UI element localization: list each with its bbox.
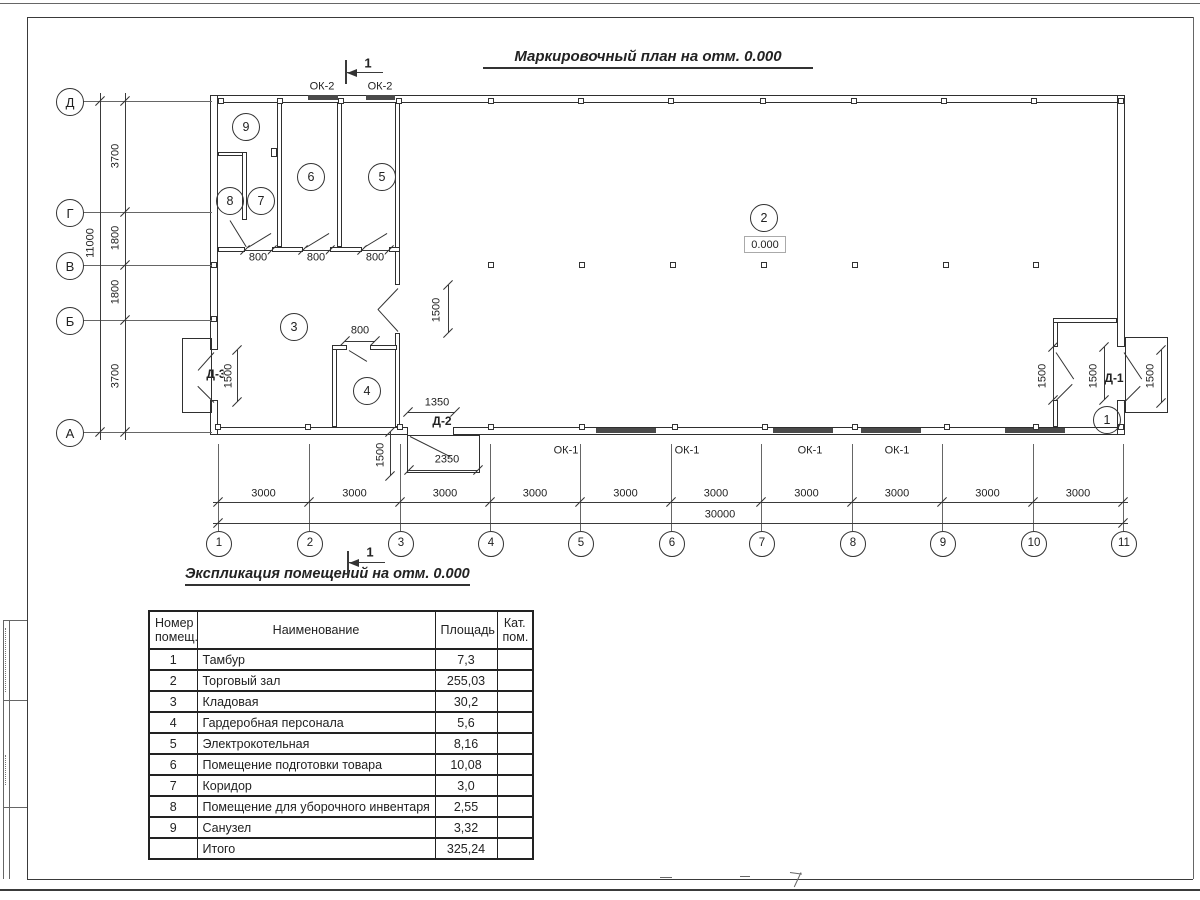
section-arrow-icon <box>349 559 359 567</box>
axis-circle-v: Д <box>56 88 84 116</box>
room-number-circle: 7 <box>247 187 275 215</box>
axis-circle-h: 6 <box>659 531 685 557</box>
axis-line <box>82 265 212 266</box>
table-row: 8Помещение для уборочного инвентаря2,55 <box>149 796 533 817</box>
dim-label: 1500 <box>1038 363 1049 389</box>
dim-label: 3000 <box>522 489 548 500</box>
interior-wall <box>1053 400 1058 427</box>
col-header-category: Кат. пом. <box>497 611 533 649</box>
axis-circle-h: 7 <box>749 531 775 557</box>
frame-edge-bottom <box>0 889 1200 891</box>
col-header-area: Площадь <box>435 611 497 649</box>
table-row: Итого325,24 <box>149 838 533 859</box>
column-marker <box>218 98 224 104</box>
dim-line <box>408 412 455 413</box>
table-row: 1Тамбур7,3 <box>149 649 533 670</box>
room-number-circle: 6 <box>297 163 325 191</box>
interior-wall <box>272 247 303 252</box>
dim-label: 3700 <box>111 143 122 169</box>
table-cell-name: Помещение для уборочного инвентаря <box>197 796 435 817</box>
axis-circle-h: 4 <box>478 531 504 557</box>
frame-margin-line-1 <box>3 620 4 879</box>
axis-line <box>671 444 672 531</box>
axis-line <box>852 444 853 531</box>
table-cell-category <box>497 754 533 775</box>
axis-line <box>309 444 310 531</box>
table-cell-category <box>497 733 533 754</box>
explication-title: Экспликация помещений на отм. 0.000 <box>185 566 470 586</box>
table-cell-category <box>497 838 533 859</box>
interior-wall <box>370 345 397 350</box>
column-marker <box>1033 262 1039 268</box>
frame-margin-microtext <box>5 755 6 785</box>
section-arrow-icon <box>347 69 357 77</box>
table-cell-category <box>497 775 533 796</box>
column-marker <box>760 98 766 104</box>
interior-wall <box>277 103 282 247</box>
dim-label: 800 <box>365 253 385 264</box>
column-marker <box>338 98 344 104</box>
door-mark-d1: Д-1 <box>1103 372 1124 384</box>
room-number-circle: 5 <box>368 163 396 191</box>
column-marker <box>579 424 585 430</box>
axis-line <box>942 444 943 531</box>
door-leaf <box>364 233 388 248</box>
table-row: 3Кладовая30,2 <box>149 691 533 712</box>
room-number-circle: 2 <box>750 204 778 232</box>
column-marker <box>305 424 311 430</box>
axis-circle-h: 8 <box>840 531 866 557</box>
window-ok1 <box>861 428 921 433</box>
door-leaf <box>378 309 399 332</box>
table-cell-number: 2 <box>149 670 197 691</box>
table-cell-name: Кладовая <box>197 691 435 712</box>
frame-margin-div-1 <box>3 620 27 621</box>
column-marker <box>851 98 857 104</box>
dim-line <box>213 523 1128 524</box>
column-marker <box>944 424 950 430</box>
window-mark-ok1: ОК-1 <box>797 446 824 457</box>
table-cell-area: 255,03 <box>435 670 497 691</box>
frame-left <box>27 17 28 879</box>
axis-line <box>82 432 212 433</box>
table-cell-area: 5,6 <box>435 712 497 733</box>
table-cell-name: Помещение подготовки товара <box>197 754 435 775</box>
column-marker <box>668 98 674 104</box>
table-row: 4Гардеробная персонала5,6 <box>149 712 533 733</box>
table-cell-category <box>497 712 533 733</box>
dim-label: 3000 <box>974 489 1000 500</box>
table-cell-name: Коридор <box>197 775 435 796</box>
explication-table: Номер помещ. Наименование Площадь Кат. п… <box>148 610 534 860</box>
dim-line <box>448 285 449 333</box>
table-cell-name: Санузел <box>197 817 435 838</box>
interior-wall <box>330 247 362 252</box>
frame-margin-line-2 <box>9 620 10 879</box>
door-leaf <box>230 220 247 247</box>
interior-wall <box>337 103 342 247</box>
axis-circle-v: А <box>56 419 84 447</box>
dim-label: 1800 <box>111 225 122 251</box>
column-marker <box>852 262 858 268</box>
door-leaf <box>1056 352 1075 380</box>
window-ok1 <box>596 428 656 433</box>
table-cell-category <box>497 796 533 817</box>
table-cell-name: Тамбур <box>197 649 435 670</box>
column-marker <box>941 98 947 104</box>
section-mark-bottom-label: 1 <box>366 545 373 560</box>
door-leaf <box>248 233 272 248</box>
table-cell-number: 4 <box>149 712 197 733</box>
interior-wall <box>332 345 337 427</box>
axis-line <box>1123 444 1124 531</box>
table-cell-name: Торговый зал <box>197 670 435 691</box>
dim-line <box>409 470 478 471</box>
frame-edge-top <box>0 3 1200 4</box>
column-marker <box>852 424 858 430</box>
column-marker <box>579 262 585 268</box>
dim-line <box>345 341 375 342</box>
frame-right <box>1193 17 1194 879</box>
axis-circle-v: В <box>56 252 84 280</box>
axis-circle-h: 2 <box>297 531 323 557</box>
frame-top <box>27 17 1193 18</box>
axis-circle-h: 1 <box>206 531 232 557</box>
column-marker <box>761 262 767 268</box>
axis-circle-h: 3 <box>388 531 414 557</box>
frame-margin-microtext <box>5 628 6 692</box>
axis-circle-h: 9 <box>930 531 956 557</box>
column-marker <box>397 424 403 430</box>
room-number-circle: 1 <box>1093 406 1121 434</box>
axis-circle-v: Б <box>56 307 84 335</box>
column-marker <box>1031 98 1037 104</box>
column-marker <box>396 98 402 104</box>
window-mark-ok1: ОК-1 <box>553 446 580 457</box>
table-cell-number: 1 <box>149 649 197 670</box>
axis-circle-h: 10 <box>1021 531 1047 557</box>
window-ok1 <box>773 428 833 433</box>
axis-line <box>761 444 762 531</box>
axis-line <box>82 212 212 213</box>
porch-d3 <box>182 338 212 413</box>
door-mark-d2: Д-2 <box>431 415 452 427</box>
door-leaf <box>378 288 399 310</box>
axis-line <box>490 444 491 531</box>
frame-margin-div-2 <box>3 700 27 701</box>
dim-label: 3000 <box>703 489 729 500</box>
axis-line <box>218 444 219 531</box>
dim-label: 3000 <box>1065 489 1091 500</box>
dim-label-h-total: 30000 <box>704 510 737 521</box>
column-marker <box>670 262 676 268</box>
dim-label: 3000 <box>884 489 910 500</box>
table-cell-number: 7 <box>149 775 197 796</box>
frame-bottom <box>27 879 1193 880</box>
dim-line <box>1104 347 1105 400</box>
column-marker <box>488 424 494 430</box>
axis-line <box>82 101 212 102</box>
interior-wall <box>271 148 277 157</box>
table-cell-name: Итого <box>197 838 435 859</box>
door-leaf <box>349 350 367 362</box>
interior-wall <box>242 152 247 220</box>
room-number-circle: 8 <box>216 187 244 215</box>
column-marker <box>215 424 221 430</box>
dim-label: 800 <box>350 326 370 337</box>
window-mark-ok2: ОК-2 <box>367 82 394 93</box>
dim-label: 1500 <box>432 297 443 323</box>
dim-label: 1500 <box>224 363 235 389</box>
dim-line <box>1161 350 1162 403</box>
dim-line <box>125 93 126 440</box>
section-mark-top-label: 1 <box>364 56 371 71</box>
axis-line <box>82 320 212 321</box>
table-cell-category <box>497 649 533 670</box>
dim-label-1350: 1350 <box>424 398 450 409</box>
table-cell-number: 3 <box>149 691 197 712</box>
col-header-number: Номер помещ. <box>149 611 197 649</box>
interior-wall <box>218 247 245 252</box>
exterior-wall <box>210 95 218 350</box>
col-header-name: Наименование <box>197 611 435 649</box>
table-cell-area: 3,32 <box>435 817 497 838</box>
dim-label: 3000 <box>341 489 367 500</box>
table-row: 6Помещение подготовки товара10,08 <box>149 754 533 775</box>
pencil-mark <box>660 877 672 878</box>
table-cell-number <box>149 838 197 859</box>
table-cell-area: 7,3 <box>435 649 497 670</box>
pencil-mark <box>740 876 750 877</box>
table-cell-category <box>497 691 533 712</box>
axis-circle-h: 5 <box>568 531 594 557</box>
room-number-circle: 9 <box>232 113 260 141</box>
dim-label: 3000 <box>250 489 276 500</box>
room-number-circle: 4 <box>353 377 381 405</box>
frame-margin-div-3 <box>3 807 27 808</box>
dim-label: 1800 <box>111 279 122 305</box>
dim-label: 3000 <box>793 489 819 500</box>
interior-wall <box>1053 318 1117 323</box>
dim-line <box>100 93 101 440</box>
exterior-wall <box>1117 95 1125 347</box>
window-mark-ok1: ОК-1 <box>884 446 911 457</box>
table-row: 5Электрокотельная8,16 <box>149 733 533 754</box>
dim-label-v-total: 11000 <box>86 227 97 259</box>
elevation-box: 0.000 <box>744 236 786 253</box>
table-cell-number: 5 <box>149 733 197 754</box>
plan-title: Маркировочный план на отм. 0.000 <box>483 48 813 69</box>
table-cell-category <box>497 670 533 691</box>
room-number-circle: 3 <box>280 313 308 341</box>
door-leaf <box>1056 384 1073 401</box>
table-cell-number: 8 <box>149 796 197 817</box>
dim-label: 800 <box>248 253 268 264</box>
dim-label: 3000 <box>432 489 458 500</box>
door-leaf <box>306 233 330 248</box>
dim-line <box>237 350 238 402</box>
column-marker <box>762 424 768 430</box>
dim-label: 1500 <box>1089 363 1100 389</box>
dim-label: 3700 <box>111 363 122 389</box>
table-cell-name: Гардеробная персонала <box>197 712 435 733</box>
window-mark-ok1: ОК-1 <box>674 446 701 457</box>
table-cell-area: 3,0 <box>435 775 497 796</box>
axis-line <box>580 444 581 531</box>
table-cell-area: 325,24 <box>435 838 497 859</box>
table-cell-area: 2,55 <box>435 796 497 817</box>
window-mark-ok2: ОК-2 <box>309 82 336 93</box>
dim-line <box>1053 347 1054 400</box>
column-marker <box>488 262 494 268</box>
table-row: 9Санузел3,32 <box>149 817 533 838</box>
axis-circle-v: Г <box>56 199 84 227</box>
table-cell-area: 10,08 <box>435 754 497 775</box>
dim-label: 3000 <box>612 489 638 500</box>
window-ok2 <box>308 95 338 100</box>
column-marker <box>943 262 949 268</box>
table-cell-number: 9 <box>149 817 197 838</box>
table-row: 2Торговый зал255,03 <box>149 670 533 691</box>
column-marker <box>488 98 494 104</box>
axis-line <box>400 444 401 531</box>
table-header-row: Номер помещ. Наименование Площадь Кат. п… <box>149 611 533 649</box>
table-cell-category <box>497 817 533 838</box>
dim-label: 800 <box>306 253 326 264</box>
column-marker <box>578 98 584 104</box>
interior-wall <box>332 345 347 350</box>
interior-wall <box>395 103 400 285</box>
column-marker <box>211 316 217 322</box>
column-marker <box>672 424 678 430</box>
dim-label: 1500 <box>1146 363 1157 389</box>
table-cell-number: 6 <box>149 754 197 775</box>
table-cell-area: 8,16 <box>435 733 497 754</box>
table-row: 7Коридор3,0 <box>149 775 533 796</box>
table-cell-area: 30,2 <box>435 691 497 712</box>
column-marker <box>277 98 283 104</box>
window-ok2 <box>366 95 395 100</box>
column-marker <box>1033 424 1039 430</box>
axis-circle-h: 11 <box>1111 531 1137 557</box>
table-cell-name: Электрокотельная <box>197 733 435 754</box>
axis-line <box>1033 444 1034 531</box>
drawing-sheet: Маркировочный план на отм. 0.000 Эксплик… <box>0 0 1200 900</box>
column-marker <box>1118 98 1124 104</box>
dim-label: 1500 <box>376 442 387 468</box>
dim-line <box>390 432 391 476</box>
